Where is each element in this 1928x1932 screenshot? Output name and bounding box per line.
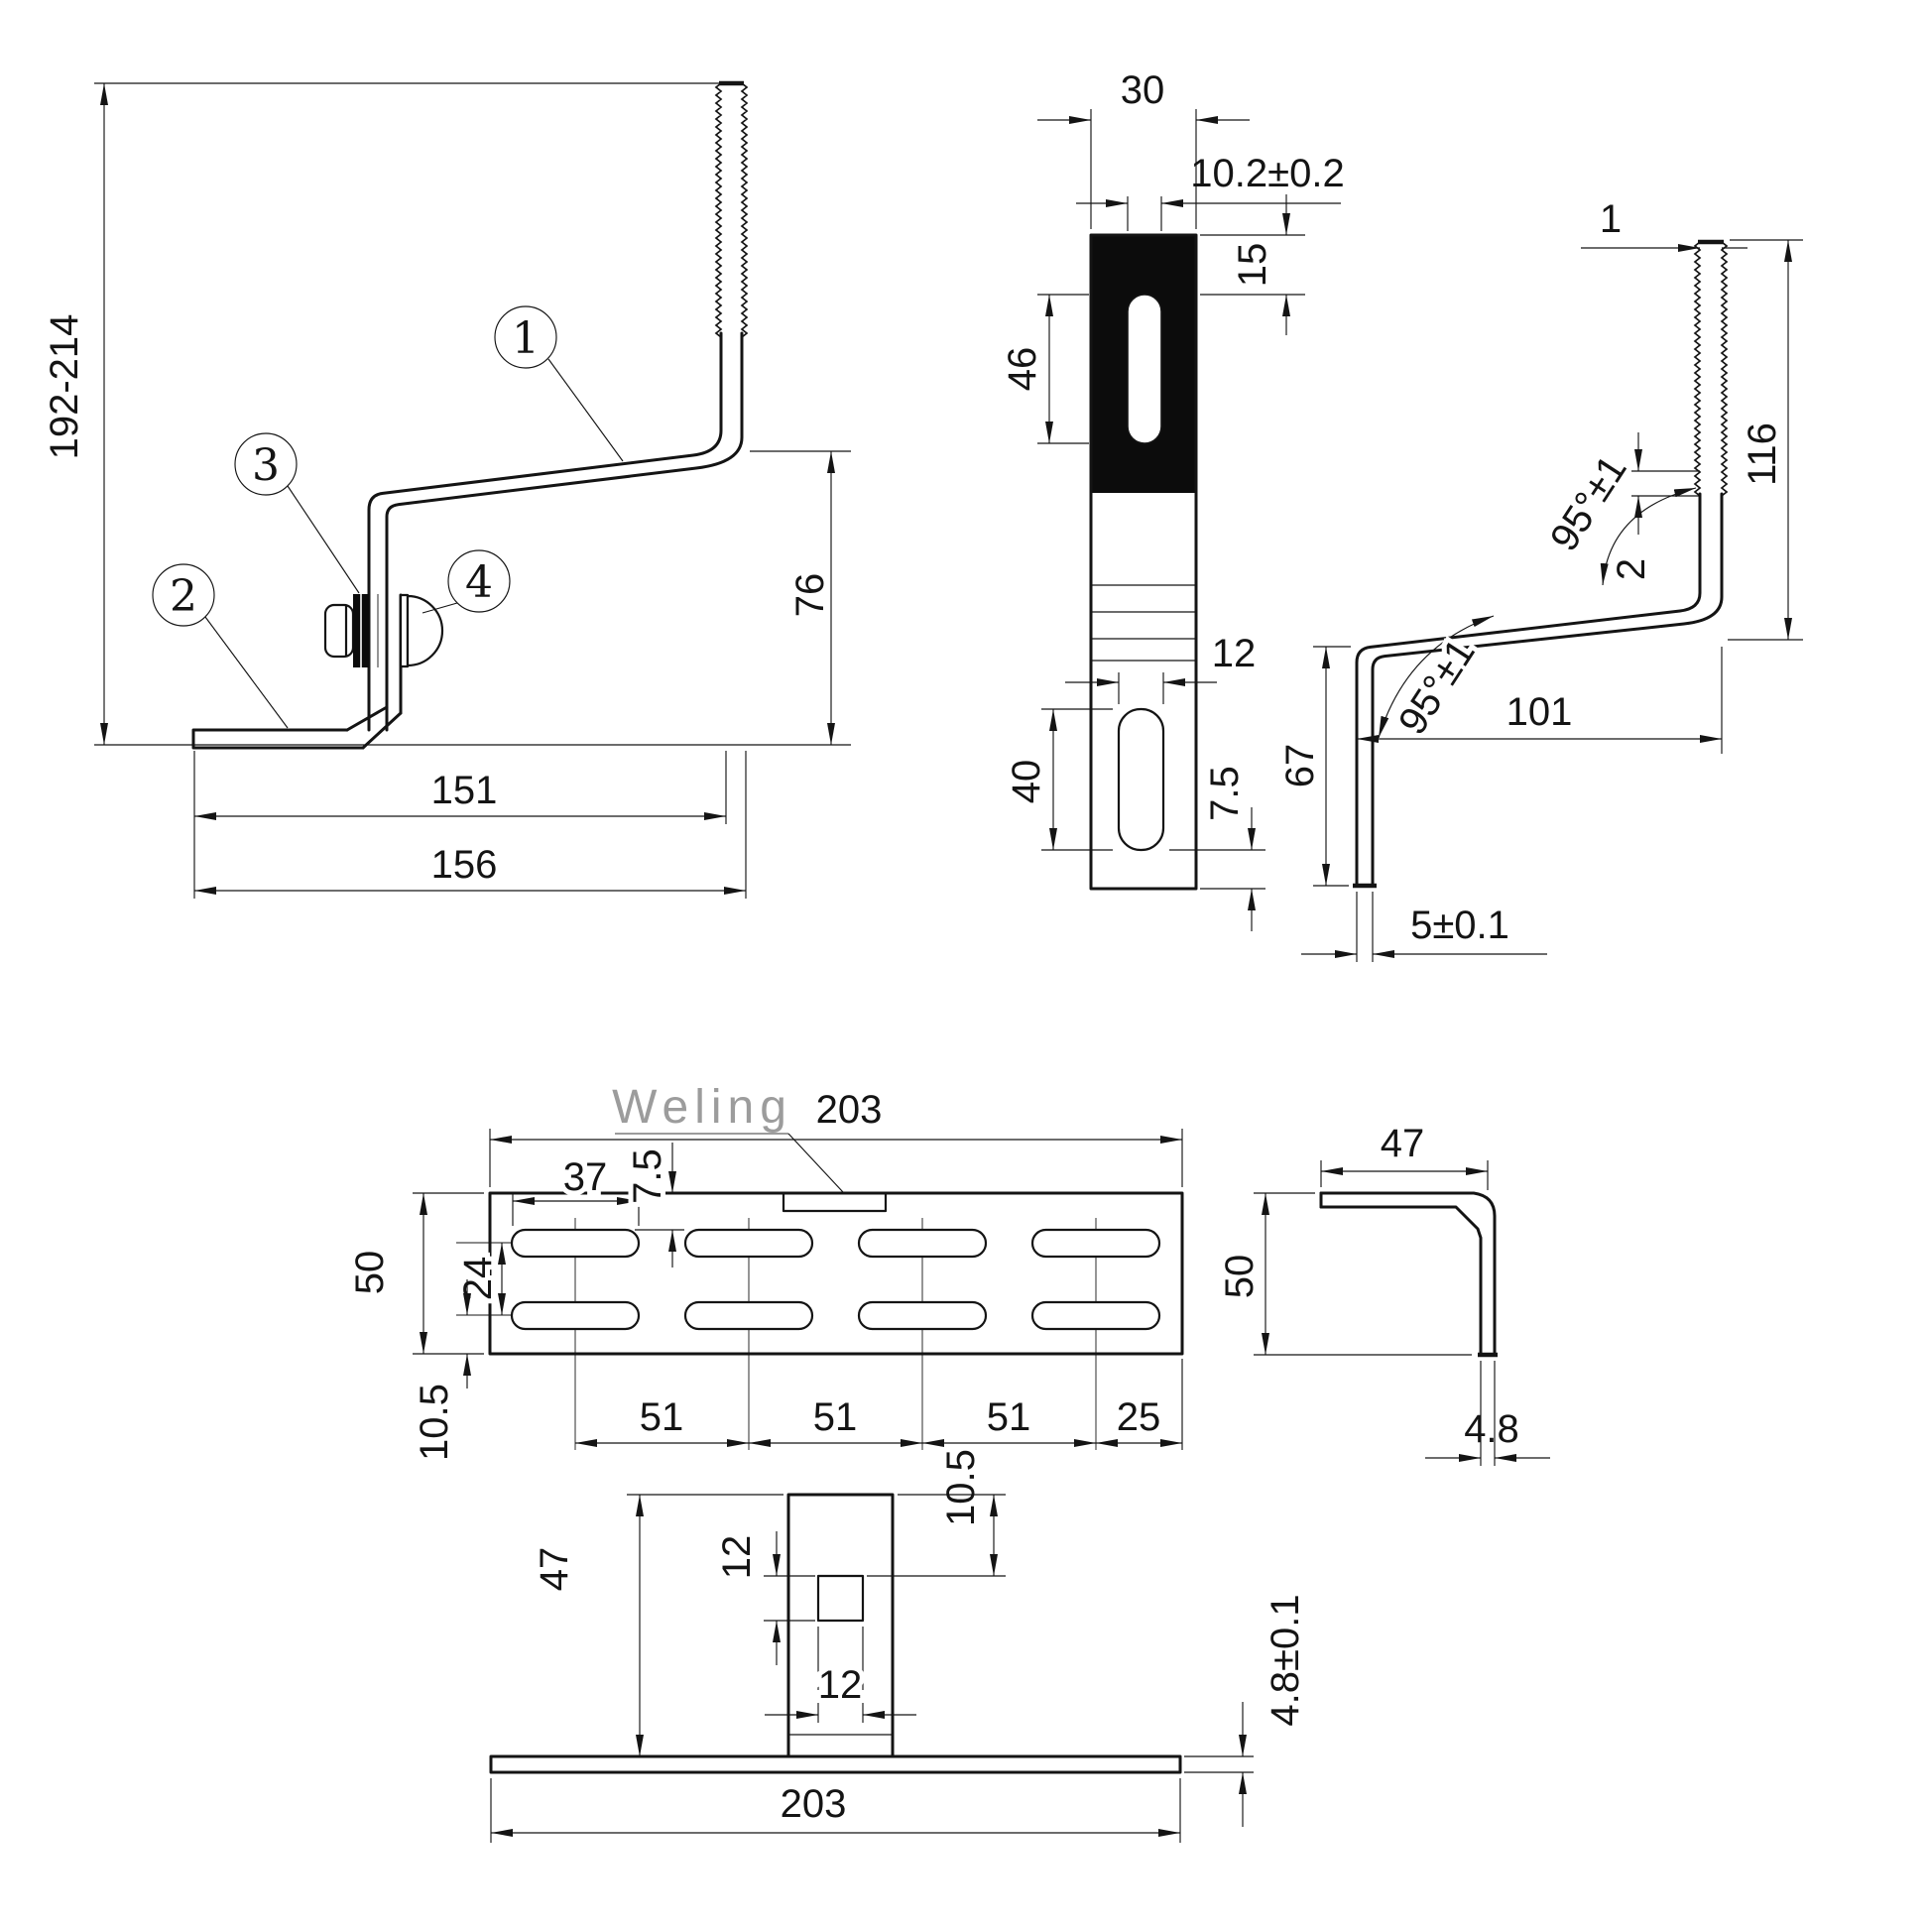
callout-1-label: 1 <box>512 313 540 364</box>
plate-slot-r2c4 <box>1032 1302 1159 1329</box>
strap-lower-slot <box>1119 709 1163 850</box>
dim-thread-pitch: 2 <box>1610 558 1653 580</box>
dim-drop-height: 76 <box>788 573 832 618</box>
dim-plate-row-spacing: 24 <box>456 1257 500 1301</box>
engineering-drawing-page: 1 3 2 4 192-214 76 <box>0 0 1928 1932</box>
plate-slot-r1c1 <box>512 1230 639 1257</box>
dim-front-hole-width: 12 <box>818 1663 863 1707</box>
dim-front-tab-height: 47 <box>533 1547 576 1592</box>
dim-plate-length: 203 <box>816 1088 883 1132</box>
dim-thread-crest: 1 <box>1600 197 1622 241</box>
dim-plate-width: 50 <box>348 1251 392 1295</box>
dim-rod-height: 116 <box>1741 423 1784 486</box>
dim-front-hole-height: 12 <box>715 1535 759 1580</box>
plate-slot-r2c2 <box>685 1302 812 1329</box>
dim-strap-slot-top-offset: 15 <box>1231 243 1274 288</box>
callout-2-label: 2 <box>170 571 197 622</box>
callout-4-label: 4 <box>465 557 493 608</box>
dim-strap-lower-slot-length: 40 <box>1005 760 1048 804</box>
dim-overall-length: 156 <box>431 843 498 887</box>
plate-slot-r1c4 <box>1032 1230 1159 1257</box>
dim-plate-slot-length: 37 <box>563 1155 608 1199</box>
callout-3-label: 3 <box>252 440 280 491</box>
dim-plate-end-offset: 25 <box>1117 1395 1161 1439</box>
dim-strap-lower-slot-margin: 7.5 <box>1203 766 1247 821</box>
front-base-bar <box>491 1756 1180 1772</box>
plate-slot-r1c2 <box>685 1230 812 1257</box>
plate-slot-r2c3 <box>859 1302 986 1329</box>
front-tab-square-hole <box>818 1576 863 1621</box>
dim-plate-slot-top-offset: 7.5 <box>626 1148 669 1204</box>
dim-leg-height: 67 <box>1278 744 1322 788</box>
dim-plate-pitch-1: 51 <box>640 1395 684 1439</box>
dim-front-hole-top-offset: 10.5 <box>939 1449 983 1526</box>
dim-plate-bottom-offset: 10.5 <box>413 1384 456 1461</box>
dim-plate-pitch-3: 51 <box>987 1395 1031 1439</box>
background <box>0 0 1928 1932</box>
dim-hook-thickness: 5±0.1 <box>1410 904 1509 947</box>
dim-strap-slot-length: 46 <box>1001 347 1044 392</box>
drawing-canvas: 1 3 2 4 192-214 76 <box>0 0 1928 1932</box>
dim-front-length: 203 <box>781 1782 847 1826</box>
dim-arm-span: 101 <box>1506 690 1573 734</box>
dim-angle-flange: 47 <box>1381 1122 1425 1165</box>
dim-strap-slot-width: 10.2±0.2 <box>1190 152 1344 195</box>
dim-plate-pitch-2: 51 <box>813 1395 858 1439</box>
plate-slot-r2c1 <box>512 1302 639 1329</box>
dim-front-thickness: 4.8±0.1 <box>1264 1594 1307 1726</box>
hex-bolt-head <box>325 605 353 657</box>
brand-label: Weling <box>612 1081 792 1134</box>
strap-upper-slot <box>1128 295 1161 443</box>
dim-angle-thickness: 4.8 <box>1464 1407 1519 1451</box>
dim-angle-height: 50 <box>1218 1255 1262 1299</box>
dim-overall-height: 192-214 <box>43 314 86 460</box>
dim-strap-lower-slot-width: 12 <box>1212 632 1257 675</box>
dim-strap-width: 30 <box>1121 68 1165 112</box>
plate-slot-r1c3 <box>859 1230 986 1257</box>
dim-length-to-rod: 151 <box>431 769 498 812</box>
